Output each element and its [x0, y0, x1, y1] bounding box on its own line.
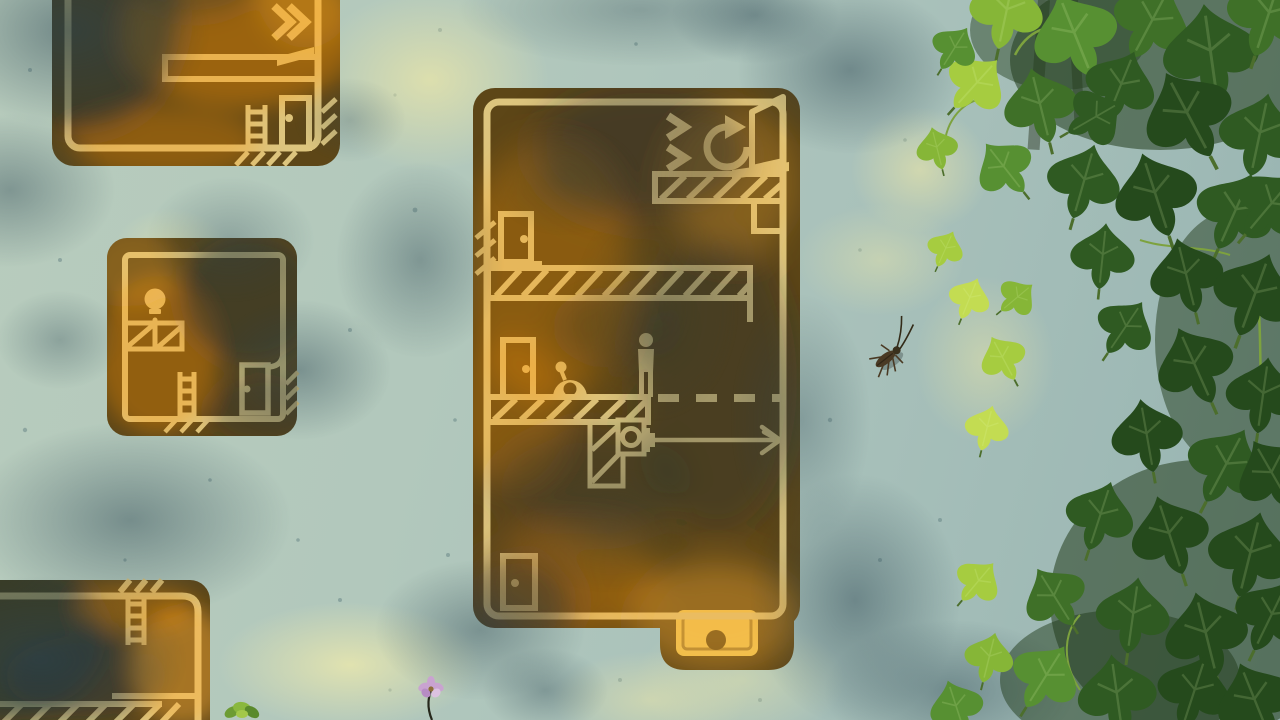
ivy-leaf: [1210, 152, 1280, 268]
ivy-leaf: [918, 224, 970, 280]
ivy-leaf: [1142, 312, 1253, 430]
ivy-leaf: [957, 627, 1019, 696]
ivy-leaf: [1203, 649, 1280, 720]
ivy-leaf: [1219, 352, 1280, 450]
ivy-leaf: [1072, 649, 1164, 720]
ivy-leaf: [925, 39, 1020, 135]
ivy-leaf: [960, 0, 1051, 68]
wild-flower: [398, 680, 462, 720]
ivy-leaf: [983, 269, 1045, 330]
ivy-depth: [970, 0, 1280, 720]
ivy-leaf: [922, 672, 994, 720]
ivy-leaf: [1089, 572, 1175, 670]
ivy-leaf: [1045, 76, 1136, 163]
ivy-leaf: [1155, 582, 1261, 700]
ivy-leaf: [971, 326, 1039, 398]
game-viewport[interactable]: [0, 0, 1280, 720]
ivy-leaf: [1156, 0, 1268, 125]
ivy-leaf: [1141, 229, 1235, 333]
trellis-shadow: [1028, 0, 1085, 150]
ivy-leaf: [1196, 240, 1280, 363]
ivy-leaf: [1034, 134, 1130, 240]
ivy-leaf: [1119, 484, 1224, 598]
ivy-leaf: [1221, 422, 1280, 536]
ivy-leaf: [991, 628, 1094, 720]
ivy-leaf: [1208, 85, 1280, 197]
ivy-leaf: [917, 15, 987, 87]
panel-bottom-left: [0, 576, 220, 720]
ivy-leaf: [939, 270, 997, 332]
ivy-leaf: [1066, 220, 1138, 303]
ivy-leaf: [962, 125, 1052, 217]
ivy-leaf: [1010, 552, 1105, 651]
ivy-leaf: [1177, 158, 1280, 276]
panel-top-left: [46, 0, 346, 170]
ivy-leaf: [1102, 140, 1213, 261]
ivy-leaf: [1211, 0, 1280, 82]
ivy-leaf: [1105, 393, 1191, 490]
green-sprout: [214, 694, 274, 720]
ivy-leaf: [1165, 411, 1279, 532]
ivy-leaf: [1069, 38, 1168, 144]
bug-icon: [856, 312, 926, 402]
panel-main[interactable]: [462, 82, 807, 682]
ivy-leaf: [1018, 0, 1137, 105]
ivy-stems: [945, 28, 1265, 690]
ivy-leaf: [958, 400, 1014, 462]
ivy-leaf: [1195, 502, 1280, 620]
ivy-leaf: [1216, 565, 1280, 677]
ivy-leaf: [939, 548, 1011, 621]
ivy-leaves: [911, 0, 1280, 720]
ivy-leaf: [1143, 644, 1241, 720]
door-knob: [285, 114, 293, 122]
panel-mid-left: [105, 236, 301, 440]
ivy-leaf: [1078, 286, 1167, 378]
ivy-leaf: [911, 122, 964, 181]
ivy-leaf: [995, 59, 1089, 163]
ivy-leaf: [1125, 51, 1257, 190]
ivy-leaf: [1052, 471, 1144, 571]
ivy-leaf: [1091, 0, 1205, 88]
